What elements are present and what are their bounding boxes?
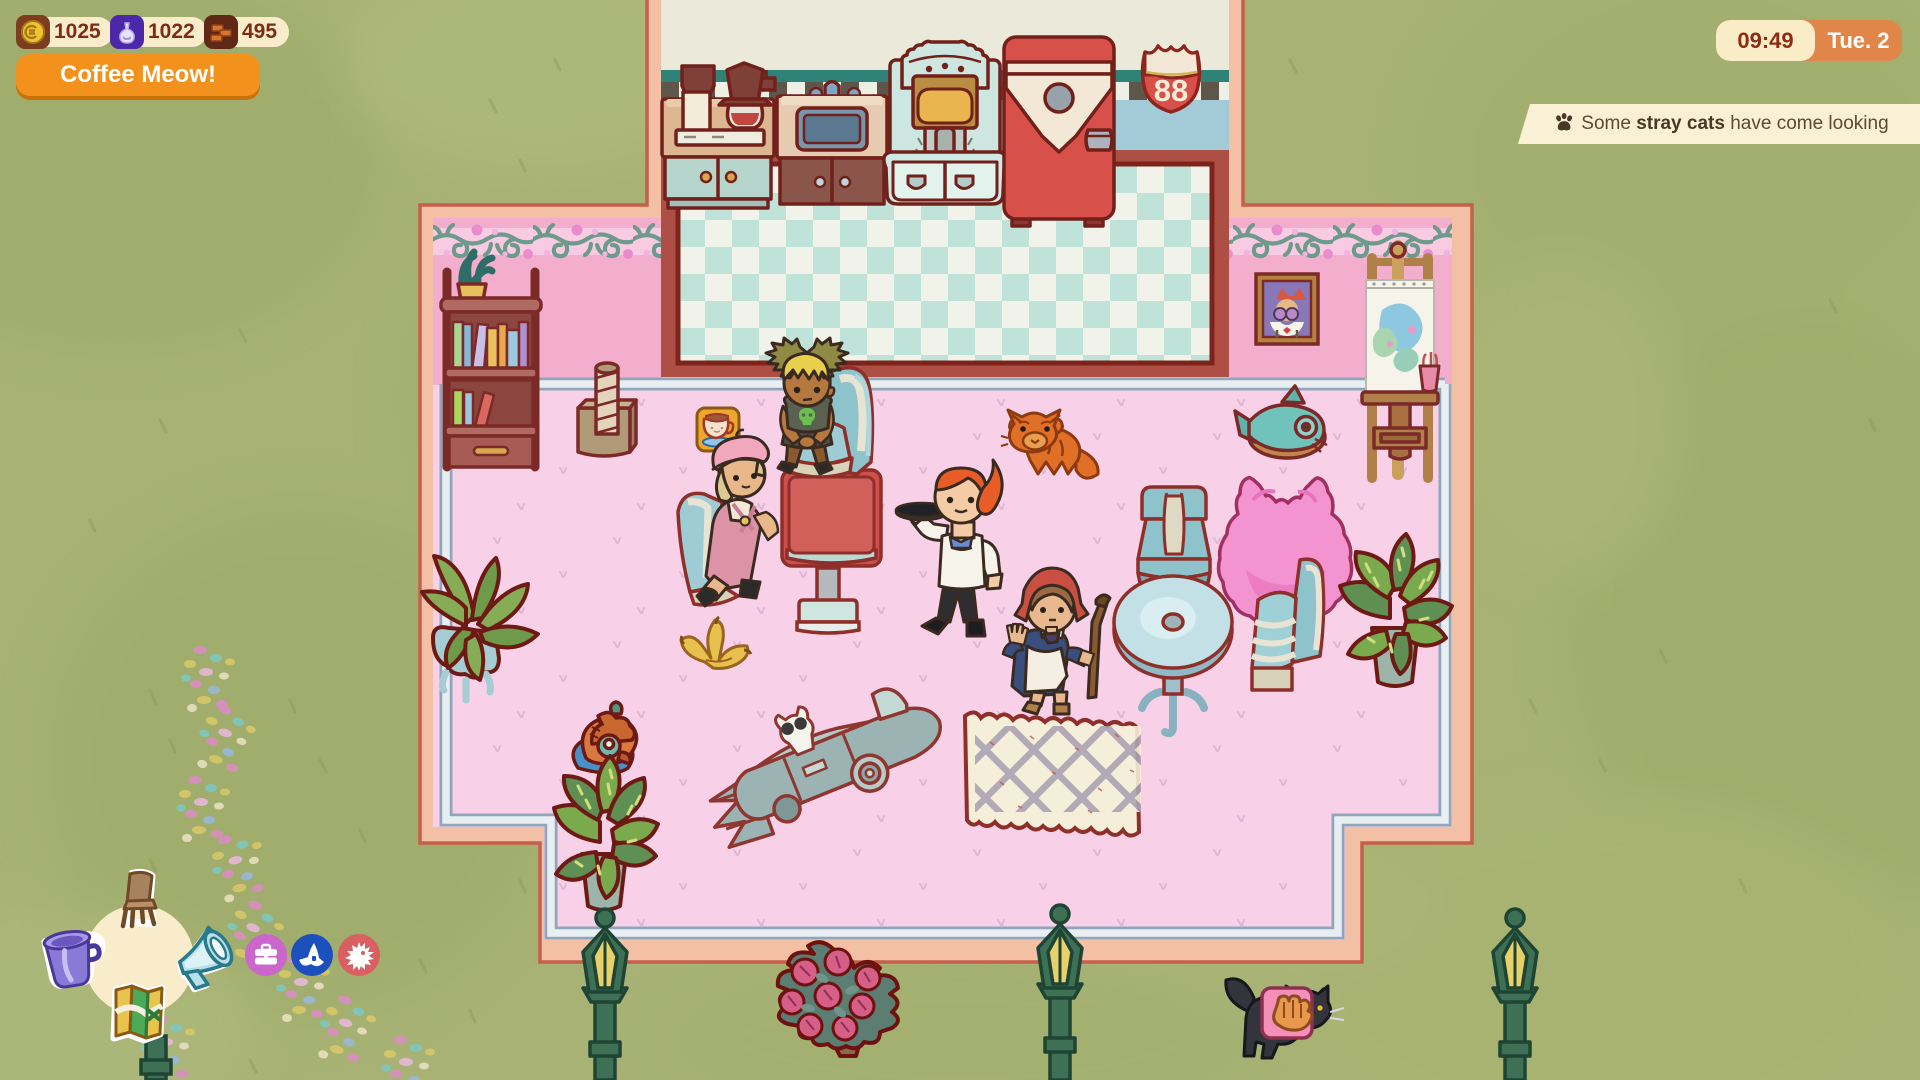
svg-text:88: 88 (1154, 73, 1188, 108)
